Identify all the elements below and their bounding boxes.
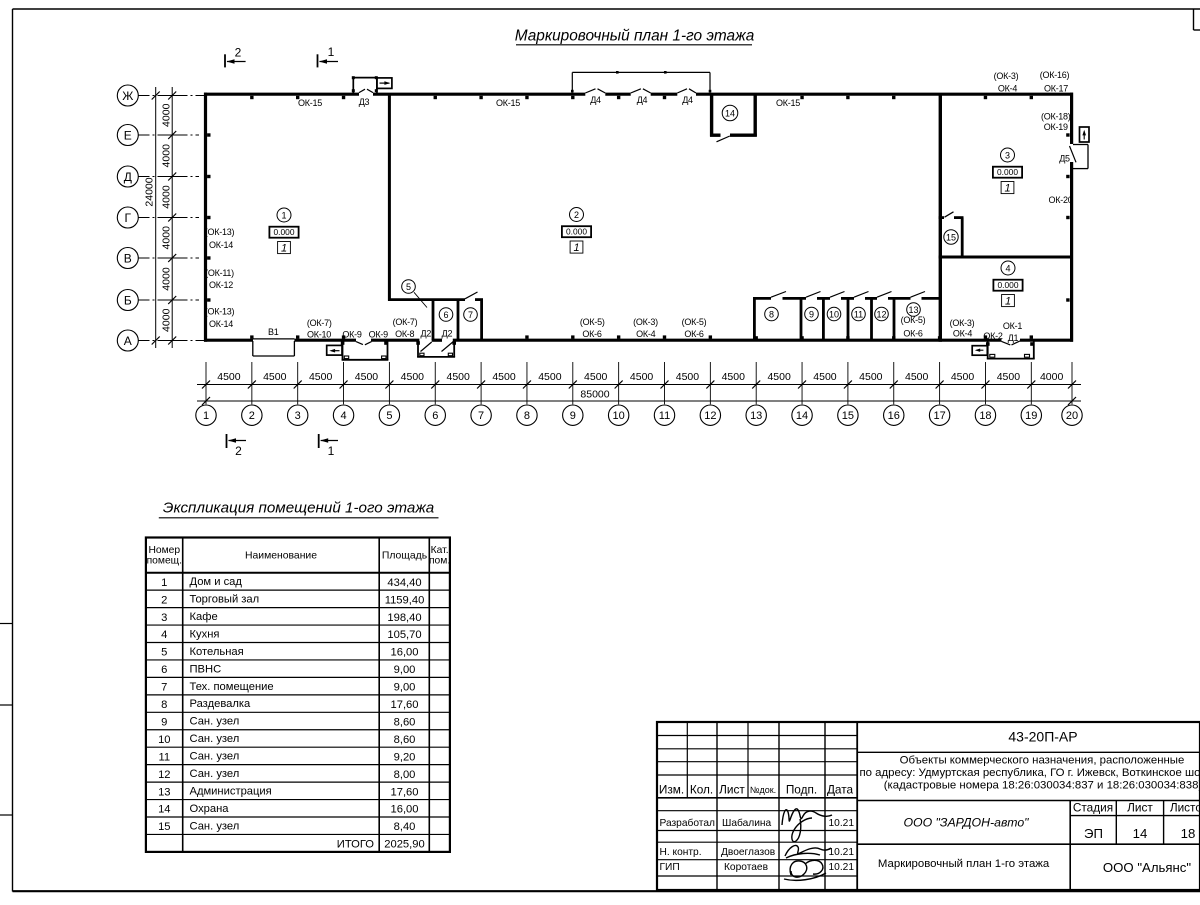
svg-text:ОК-8: ОК-8 <box>395 329 414 339</box>
svg-text:43-20П-АР: 43-20П-АР <box>1008 729 1077 745</box>
svg-text:ОК-14: ОК-14 <box>209 319 233 329</box>
svg-text:4500: 4500 <box>355 371 379 383</box>
svg-text:7: 7 <box>468 310 473 320</box>
svg-text:1: 1 <box>573 242 579 254</box>
svg-text:0.000: 0.000 <box>998 280 1019 290</box>
svg-text:1: 1 <box>1004 183 1010 195</box>
svg-text:Д4: Д4 <box>682 95 693 105</box>
svg-text:Сан. узел: Сан. узел <box>190 768 240 780</box>
svg-text:Сан. узел: Сан. узел <box>190 820 240 832</box>
svg-text:по адресу: Удмуртская республи: по адресу: Удмуртская республика, ГО г. … <box>860 767 1200 779</box>
svg-text:15: 15 <box>946 233 956 243</box>
svg-text:№док.: №док. <box>750 785 776 795</box>
svg-text:ОК-12: ОК-12 <box>209 280 233 290</box>
svg-text:ОК-6: ОК-6 <box>582 329 601 339</box>
svg-text:(ОК-3): (ОК-3) <box>633 317 658 327</box>
svg-text:Стадия: Стадия <box>1073 801 1113 815</box>
svg-text:4500: 4500 <box>859 371 883 383</box>
svg-text:4000: 4000 <box>160 267 172 291</box>
svg-text:Д4: Д4 <box>637 95 648 105</box>
svg-text:17,60: 17,60 <box>391 786 419 798</box>
svg-text:Администрация: Администрация <box>190 785 272 797</box>
svg-text:ОК-15: ОК-15 <box>298 98 322 108</box>
svg-text:4000: 4000 <box>160 185 172 209</box>
svg-text:(ОК-3): (ОК-3) <box>994 71 1019 81</box>
svg-text:Изм.: Изм. <box>659 783 684 797</box>
svg-text:20: 20 <box>1066 410 1078 422</box>
svg-text:0.000: 0.000 <box>997 167 1018 177</box>
svg-text:4500: 4500 <box>263 371 287 383</box>
svg-text:2: 2 <box>235 444 242 458</box>
svg-text:11: 11 <box>659 410 670 422</box>
svg-text:5: 5 <box>406 282 411 292</box>
svg-text:Экспликация помещений 1-ого эт: Экспликация помещений 1-ого этажа <box>163 500 434 517</box>
svg-text:4500: 4500 <box>401 371 425 383</box>
svg-text:4500: 4500 <box>584 371 608 383</box>
svg-text:В1: В1 <box>268 327 279 337</box>
svg-text:18: 18 <box>979 410 991 422</box>
svg-text:10: 10 <box>829 310 839 320</box>
svg-text:10.21: 10.21 <box>829 818 855 829</box>
svg-text:Наименование: Наименование <box>245 551 317 562</box>
svg-text:ИТОГО: ИТОГО <box>337 839 375 851</box>
svg-text:ОК-20: ОК-20 <box>1048 195 1072 205</box>
svg-text:ПВНС: ПВНС <box>190 663 222 675</box>
svg-text:16,00: 16,00 <box>391 804 419 816</box>
svg-text:Сан. узел: Сан. узел <box>190 733 240 745</box>
svg-text:ГИП: ГИП <box>660 862 680 873</box>
svg-text:ОК-4: ОК-4 <box>636 329 655 339</box>
svg-text:4500: 4500 <box>997 371 1021 383</box>
svg-text:Объекты коммерческого назначен: Объекты коммерческого назначения, распол… <box>900 755 1185 767</box>
svg-text:Площадь: Площадь <box>382 551 427 562</box>
svg-text:ОК-4: ОК-4 <box>953 329 972 339</box>
svg-text:(ОК-18): (ОК-18) <box>1041 112 1071 122</box>
svg-text:Листов: Листов <box>1170 801 1200 815</box>
svg-text:4500: 4500 <box>538 371 562 383</box>
svg-text:11: 11 <box>158 751 170 763</box>
svg-text:ОК-2: ОК-2 <box>983 331 1002 341</box>
svg-text:1: 1 <box>281 243 287 255</box>
svg-text:ООО "ЗАРДОН-авто": ООО "ЗАРДОН-авто" <box>903 816 1029 830</box>
svg-text:8: 8 <box>161 699 167 711</box>
svg-text:14: 14 <box>158 804 170 816</box>
svg-text:3: 3 <box>161 612 167 624</box>
svg-text:Разработал: Разработал <box>660 817 716 829</box>
svg-text:Д: Д <box>124 170 132 184</box>
svg-text:2: 2 <box>249 410 255 422</box>
svg-text:19: 19 <box>1025 410 1037 422</box>
svg-text:16: 16 <box>888 410 900 422</box>
svg-text:Д2: Д2 <box>442 329 453 339</box>
svg-text:4500: 4500 <box>446 371 470 383</box>
svg-text:4500: 4500 <box>676 371 700 383</box>
svg-text:17: 17 <box>933 410 945 422</box>
svg-text:Лист: Лист <box>1127 801 1153 815</box>
svg-text:2025,90: 2025,90 <box>384 839 424 851</box>
svg-text:Номер: Номер <box>148 545 180 556</box>
svg-text:(кадастровые номера 18:26:0300: (кадастровые номера 18:26:030034:837 и 1… <box>884 779 1200 791</box>
svg-text:помещ.: помещ. <box>147 556 182 567</box>
svg-text:9: 9 <box>570 410 576 422</box>
svg-text:12: 12 <box>158 769 170 781</box>
svg-text:1: 1 <box>1005 296 1011 308</box>
svg-text:1: 1 <box>328 444 335 458</box>
svg-text:4500: 4500 <box>905 371 929 383</box>
svg-text:9,00: 9,00 <box>394 664 416 676</box>
svg-text:8,60: 8,60 <box>394 716 416 728</box>
svg-text:5: 5 <box>161 647 167 659</box>
svg-text:Маркировочный план 1-го этажа: Маркировочный план 1-го этажа <box>515 27 755 44</box>
svg-text:5: 5 <box>386 410 392 422</box>
svg-text:А: А <box>124 334 132 348</box>
svg-text:В: В <box>124 251 132 265</box>
svg-text:ОК-6: ОК-6 <box>903 329 922 339</box>
svg-text:(ОК-16): (ОК-16) <box>1040 70 1070 80</box>
svg-text:14: 14 <box>725 109 735 119</box>
svg-text:Котельная: Котельная <box>190 646 244 658</box>
svg-text:Шабалина: Шабалина <box>722 817 772 829</box>
svg-text:198,40: 198,40 <box>387 612 421 624</box>
svg-text:Дата: Дата <box>827 783 854 797</box>
svg-text:Тех. помещение: Тех. помещение <box>190 681 274 693</box>
svg-text:9,00: 9,00 <box>394 682 416 694</box>
svg-text:ОК-4: ОК-4 <box>998 84 1017 94</box>
svg-text:6: 6 <box>161 664 167 676</box>
svg-text:ООО "Альянс": ООО "Альянс" <box>1103 860 1191 875</box>
svg-text:1: 1 <box>203 410 209 422</box>
svg-text:1: 1 <box>161 577 167 589</box>
svg-text:Д4: Д4 <box>590 95 601 105</box>
svg-text:0.000: 0.000 <box>274 227 295 237</box>
svg-text:пом.: пом. <box>429 556 450 567</box>
svg-text:8,40: 8,40 <box>394 821 416 833</box>
svg-text:9,20: 9,20 <box>394 751 416 763</box>
svg-text:2: 2 <box>574 210 579 220</box>
svg-text:1159,40: 1159,40 <box>385 594 425 606</box>
svg-text:4000: 4000 <box>160 308 172 332</box>
svg-text:13: 13 <box>750 410 762 422</box>
svg-text:4000: 4000 <box>1040 371 1064 383</box>
svg-text:(ОК-5): (ОК-5) <box>682 317 707 327</box>
svg-text:3: 3 <box>295 410 301 422</box>
svg-text:6: 6 <box>443 310 448 320</box>
svg-text:(ОК-5): (ОК-5) <box>901 315 926 325</box>
svg-text:Н. контр.: Н. контр. <box>660 847 702 858</box>
svg-text:7: 7 <box>478 410 484 422</box>
svg-text:4500: 4500 <box>217 371 241 383</box>
svg-text:13: 13 <box>908 305 918 315</box>
svg-text:ОК-19: ОК-19 <box>1044 122 1068 132</box>
svg-text:4000: 4000 <box>160 103 172 127</box>
svg-text:(ОК-7): (ОК-7) <box>307 318 332 328</box>
svg-text:2: 2 <box>161 594 167 606</box>
svg-text:1: 1 <box>281 210 286 220</box>
svg-text:105,70: 105,70 <box>387 629 421 641</box>
svg-text:Д3: Д3 <box>359 97 370 107</box>
svg-text:(ОК-7): (ОК-7) <box>393 317 418 327</box>
svg-text:434,40: 434,40 <box>387 577 421 589</box>
svg-text:Д2: Д2 <box>420 329 431 339</box>
svg-text:Д5: Д5 <box>1059 154 1070 164</box>
svg-text:9: 9 <box>809 310 814 320</box>
svg-text:4500: 4500 <box>813 371 837 383</box>
svg-text:10: 10 <box>158 734 170 746</box>
svg-text:Г: Г <box>125 211 132 225</box>
svg-text:Охрана: Охрана <box>190 803 230 815</box>
svg-text:17,60: 17,60 <box>391 699 419 711</box>
svg-text:ОК-9: ОК-9 <box>342 330 361 340</box>
svg-text:ОК-9: ОК-9 <box>369 330 388 340</box>
svg-text:4000: 4000 <box>160 144 172 168</box>
svg-text:ОК-15: ОК-15 <box>776 98 800 108</box>
svg-text:24000: 24000 <box>144 177 156 206</box>
svg-text:ОК-6: ОК-6 <box>684 329 703 339</box>
svg-text:Б: Б <box>124 293 132 307</box>
svg-text:10.21: 10.21 <box>829 847 855 858</box>
svg-text:Ж: Ж <box>122 89 133 103</box>
svg-text:(ОК-3): (ОК-3) <box>950 318 975 328</box>
svg-text:4500: 4500 <box>951 371 975 383</box>
svg-text:18: 18 <box>1181 826 1196 841</box>
svg-text:Двоеглазов: Двоеглазов <box>721 847 775 858</box>
svg-text:9: 9 <box>161 716 167 728</box>
svg-text:4500: 4500 <box>309 371 333 383</box>
svg-text:4000: 4000 <box>160 226 172 250</box>
svg-text:12: 12 <box>876 310 886 320</box>
svg-text:4: 4 <box>1005 263 1010 273</box>
svg-text:Раздевалка: Раздевалка <box>190 698 252 710</box>
svg-text:Лист: Лист <box>719 783 745 797</box>
svg-text:4: 4 <box>340 410 346 422</box>
svg-text:Дом и сад: Дом и сад <box>190 576 243 588</box>
svg-text:ОК-14: ОК-14 <box>209 240 233 250</box>
svg-text:(ОК-13): (ОК-13) <box>205 307 235 317</box>
svg-text:4500: 4500 <box>630 371 654 383</box>
svg-text:Маркировочный план 1-го этажа: Маркировочный план 1-го этажа <box>878 858 1050 870</box>
svg-text:Кат.: Кат. <box>431 545 449 556</box>
svg-text:0.000: 0.000 <box>566 227 587 237</box>
svg-text:8: 8 <box>769 310 774 320</box>
svg-text:10.21: 10.21 <box>829 862 855 873</box>
svg-text:15: 15 <box>158 821 170 833</box>
svg-text:8,00: 8,00 <box>394 769 416 781</box>
svg-text:Подп.: Подп. <box>786 783 817 797</box>
svg-text:2: 2 <box>235 46 242 60</box>
svg-text:Кол.: Кол. <box>690 783 713 797</box>
svg-text:Кухня: Кухня <box>190 628 220 640</box>
svg-text:4: 4 <box>161 629 167 641</box>
svg-text:85000: 85000 <box>580 389 609 401</box>
svg-text:Сан. узел: Сан. узел <box>190 751 240 763</box>
svg-text:10: 10 <box>613 410 625 422</box>
svg-text:15: 15 <box>842 410 854 422</box>
svg-text:Торговый зал: Торговый зал <box>190 594 260 606</box>
svg-text:13: 13 <box>158 786 170 798</box>
svg-text:16,00: 16,00 <box>391 647 419 659</box>
svg-text:4500: 4500 <box>722 371 746 383</box>
svg-text:4500: 4500 <box>492 371 516 383</box>
svg-text:Е: Е <box>124 128 132 142</box>
svg-text:ЭП: ЭП <box>1084 826 1103 841</box>
svg-text:12: 12 <box>704 410 716 422</box>
svg-text:6: 6 <box>432 410 438 422</box>
svg-text:(ОК-13): (ОК-13) <box>205 227 235 237</box>
svg-text:Д1: Д1 <box>1008 333 1019 343</box>
svg-text:ОК-1: ОК-1 <box>1003 321 1022 331</box>
svg-text:Коротаев: Коротаев <box>724 862 768 873</box>
svg-text:Сан. узел: Сан. узел <box>190 716 240 728</box>
svg-text:14: 14 <box>796 410 808 422</box>
svg-text:ОК-10: ОК-10 <box>307 330 331 340</box>
svg-text:8: 8 <box>524 410 530 422</box>
svg-text:7: 7 <box>161 682 167 694</box>
svg-text:Кафе: Кафе <box>190 611 218 623</box>
svg-text:(ОК-11): (ОК-11) <box>205 268 234 278</box>
svg-text:11: 11 <box>854 310 863 320</box>
svg-text:1: 1 <box>328 45 335 59</box>
svg-text:(ОК-5): (ОК-5) <box>580 317 605 327</box>
svg-text:ОК-17: ОК-17 <box>1044 84 1068 94</box>
svg-text:8,60: 8,60 <box>394 734 416 746</box>
svg-text:14: 14 <box>1133 826 1148 841</box>
svg-text:4500: 4500 <box>767 371 791 383</box>
svg-text:3: 3 <box>1005 150 1010 160</box>
svg-text:ОК-15: ОК-15 <box>496 98 520 108</box>
